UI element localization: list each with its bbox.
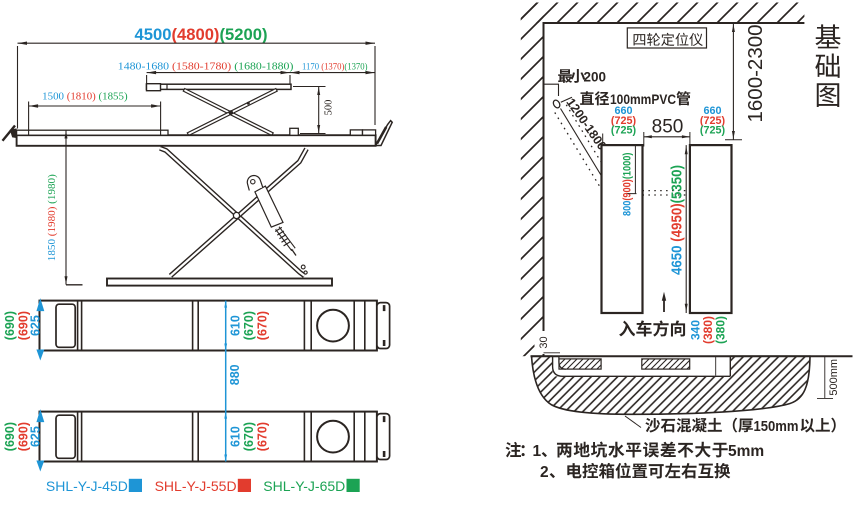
svg-text:(380): (380) <box>714 316 728 344</box>
svg-text:SHL-Y-J-55D: SHL-Y-J-55D <box>155 478 237 494</box>
svg-text:880: 880 <box>228 364 242 385</box>
svg-text:(725): (725) <box>700 125 726 137</box>
svg-text:625: 625 <box>29 426 43 447</box>
svg-text:610: 610 <box>229 315 243 336</box>
svg-text:500: 500 <box>324 100 335 116</box>
svg-text:1500 (1810) (1855): 1500 (1810) (1855) <box>42 91 128 103</box>
svg-text:200: 200 <box>584 70 607 85</box>
svg-text:1600-2300: 1600-2300 <box>744 24 767 122</box>
svg-text:(670): (670) <box>242 311 256 340</box>
svg-text:610: 610 <box>229 426 243 447</box>
svg-text:(690): (690) <box>3 311 17 340</box>
svg-text:500mm: 500mm <box>828 359 840 396</box>
svg-text:1170 (1370)(1370): 1170 (1370)(1370) <box>302 62 368 73</box>
svg-text:(670): (670) <box>242 422 256 451</box>
svg-text:4500(4800)(5200): 4500(4800)(5200) <box>135 26 268 44</box>
svg-text:(670): (670) <box>256 311 270 340</box>
svg-text:4650 (4950)(5350): 4650 (4950)(5350) <box>669 165 686 275</box>
svg-text:625: 625 <box>29 315 43 336</box>
svg-text:2: 2 <box>540 464 549 481</box>
svg-text:30: 30 <box>538 336 550 348</box>
svg-text:1850 (1980) (1980): 1850 (1980) (1980) <box>46 174 58 261</box>
svg-text:850: 850 <box>652 116 684 137</box>
svg-text:1: 1 <box>533 443 542 460</box>
svg-text:(690): (690) <box>3 422 17 451</box>
svg-text:(725): (725) <box>611 125 637 137</box>
svg-text:SHL-Y-J-45D: SHL-Y-J-45D <box>46 478 128 494</box>
svg-text:5mm: 5mm <box>728 443 764 460</box>
svg-text:(670): (670) <box>256 422 270 451</box>
svg-text:150mm: 150mm <box>754 419 799 435</box>
svg-text:800(900)(1000): 800(900)(1000) <box>622 152 634 216</box>
svg-text:1480-1680 (1580-1780) (1680-18: 1480-1680 (1580-1780) (1680-1880) <box>118 61 294 73</box>
svg-text:SHL-Y-J-65D: SHL-Y-J-65D <box>263 478 345 494</box>
